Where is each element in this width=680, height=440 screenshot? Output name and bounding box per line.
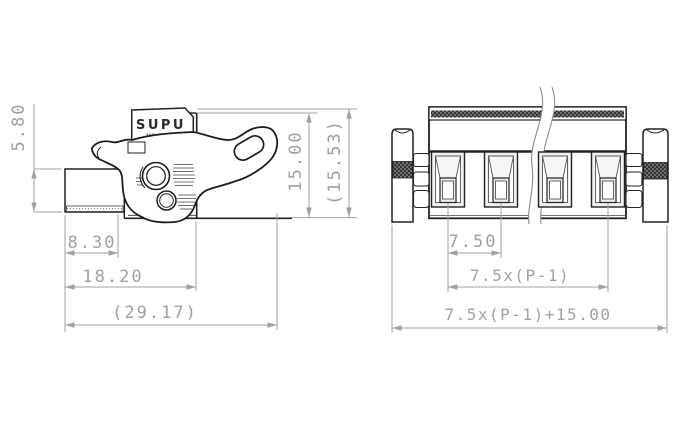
brand-logo-text: SUPU (136, 118, 186, 133)
side-clips-left (414, 154, 430, 208)
pivot-pin-large (143, 163, 170, 190)
dim-pole-span: 7.5x(P-1) (448, 266, 608, 290)
dim-front-depth: 8.30 (65, 233, 118, 256)
dim-label-7-50: 7.50 (449, 232, 498, 252)
front-view: 7.50 7.5x(P-1) 7.5x(P-1)+15.00 (392, 87, 668, 333)
dim-label-5-80: 5.80 (9, 103, 29, 152)
flange-right-knurl-band (644, 163, 668, 180)
latch-catch (128, 142, 145, 153)
wire-entry-block (65, 169, 124, 212)
pole-opening-3 (539, 152, 572, 207)
side-clips-right (626, 154, 642, 208)
dim-wire-entry-height: 5.80 (9, 103, 62, 212)
top-rail-knurl-band (431, 111, 624, 118)
dim-label-18-20: 18.20 (82, 267, 143, 287)
dim-housing-height: 15.00 (286, 113, 312, 217)
pivot-pin-small (157, 191, 176, 210)
dim-label-15-00: 15.00 (286, 130, 306, 191)
flange-left-knurl-band (393, 162, 413, 179)
dim-housing-depth: 18.20 (65, 267, 196, 290)
dim-label-overall-width: 7.5x(P-1)+15.00 (445, 305, 612, 324)
dim-label-pole-span: 7.5x(P-1) (470, 266, 570, 285)
technical-drawing-canvas: SUPU MC 253-S (0, 0, 680, 440)
dim-label-15-53: (15.53) (325, 119, 345, 205)
dim-label-8-30: 8.30 (68, 233, 117, 253)
lever-slot (243, 145, 255, 152)
wire-entry-bottom-band (67, 206, 124, 212)
flange-left (392, 129, 413, 222)
flange-right (643, 129, 668, 222)
dim-pole-pitch: 7.50 (448, 232, 501, 256)
pole-opening-4 (592, 152, 625, 207)
pole-opening-2 (485, 152, 518, 207)
pole-opening-1 (432, 152, 465, 207)
dim-overall-width: 7.5x(P-1)+15.00 (392, 305, 667, 331)
dim-overall-depth-ref: (29.17) (65, 303, 277, 328)
side-view: SUPU MC 253-S (9, 103, 357, 332)
dim-label-29-17: (29.17) (112, 303, 198, 323)
dim-overall-height-ref: (15.53) (325, 109, 352, 217)
terminal-block-drawing: SUPU MC 253-S (0, 0, 680, 440)
